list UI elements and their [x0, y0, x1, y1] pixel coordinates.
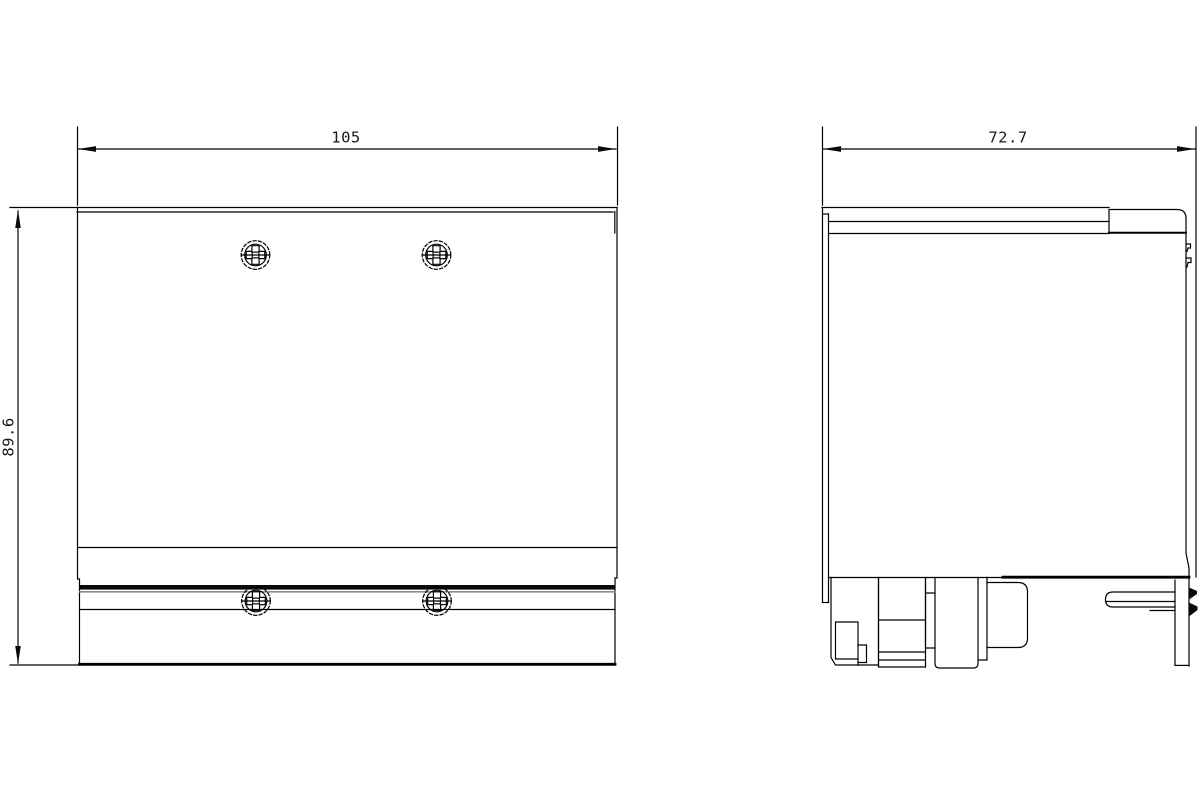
front-right-edge [615, 208, 617, 664]
screw-icon [423, 587, 452, 616]
front-view-outline [77, 208, 617, 665]
side-right-edge [1186, 219, 1189, 667]
terminal-blocks [831, 578, 1028, 669]
clip-latch-lower [1189, 603, 1198, 617]
terminal-block-a-tab [858, 645, 867, 663]
din-rail-band [80, 585, 616, 592]
terminal-block-b [879, 578, 926, 668]
screw-icon [242, 587, 271, 616]
dim-depth-label: 72.7 [988, 129, 1027, 147]
front-left-edge [78, 208, 80, 664]
arrowhead-right [598, 146, 616, 152]
arrowhead-left [823, 146, 841, 152]
dimension-height: 89.6 [0, 208, 78, 666]
terminal-block-a [831, 578, 879, 666]
side-view [822, 127, 1198, 668]
arrowhead-left [78, 146, 96, 152]
technical-drawing-canvas: 105 89.6 [0, 0, 1200, 800]
side-view-outline [822, 208, 1191, 667]
clip-latch-upper [1189, 588, 1197, 600]
dim-height-label: 89.6 [0, 417, 18, 456]
right-edge-hook-upper [1186, 244, 1191, 252]
arrowhead-bottom [15, 646, 21, 664]
screw-icon [422, 241, 451, 270]
dimension-depth: 72.7 [823, 127, 1196, 205]
round-connector [987, 583, 1028, 648]
dim-width-label: 105 [331, 129, 361, 147]
mounting-clip [1175, 580, 1198, 665]
connector-block-large [935, 578, 978, 669]
cover-block-outline [1109, 210, 1186, 234]
top-cover-block [1109, 210, 1186, 234]
arrowhead-top [15, 210, 21, 228]
front-view [77, 208, 617, 665]
arrowhead-right [1177, 146, 1195, 152]
terminal-block-a-notch [836, 622, 859, 665]
divider-strip-1 [926, 578, 936, 649]
divider-strip-2 [978, 578, 987, 661]
screw-icon [241, 241, 270, 270]
right-edge-hook-lower [1186, 258, 1191, 267]
din-rail-bar-outline [1106, 592, 1176, 607]
dimension-width: 105 [78, 127, 618, 205]
din-rail-band-bar [80, 585, 616, 590]
din-rail-bar [1106, 592, 1176, 611]
